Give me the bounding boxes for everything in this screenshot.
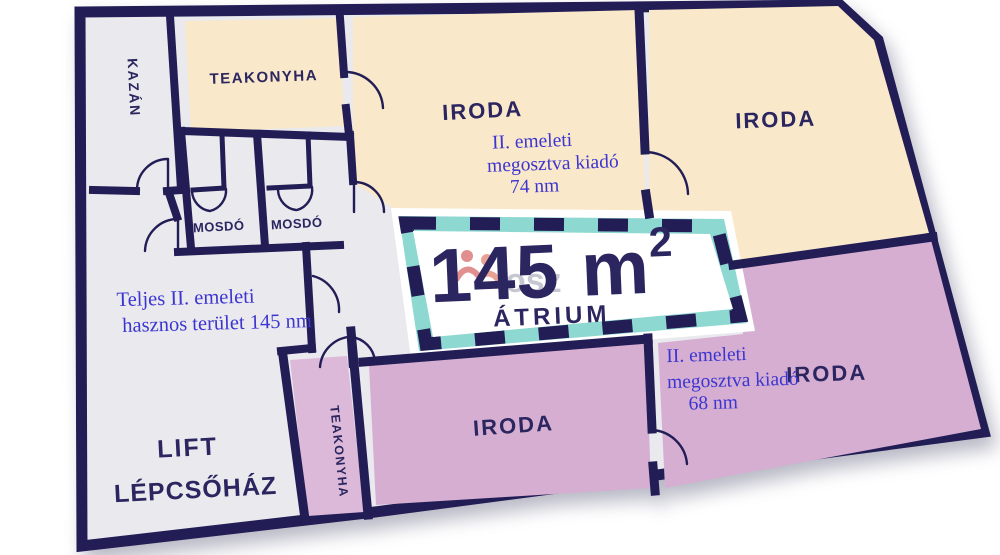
floor-plan-image: osz 145 m2 ÁTRIUM KAZÁN TEAKONYHA MOSDÓ … xyxy=(0,0,1000,555)
floor-plan-page: osz 145 m2 ÁTRIUM KAZÁN TEAKONYHA MOSDÓ … xyxy=(0,0,1000,555)
annotation-right-line3: 68 nm xyxy=(688,392,738,414)
annotation-top-line1: II. emeleti xyxy=(492,130,573,154)
room-label-lift: LIFT xyxy=(157,432,219,463)
room-label-iroda-top-right: IRODA xyxy=(735,106,817,134)
room-label-iroda-top-middle: IRODA xyxy=(442,96,524,125)
annotation-right-line1: II. emeleti xyxy=(666,344,747,367)
annotation-top-line3: 74 nm xyxy=(510,175,560,198)
room-label-kazan: KAZÁN xyxy=(124,58,143,118)
building: osz 145 m2 ÁTRIUM KAZÁN TEAKONYHA MOSDÓ … xyxy=(80,5,984,546)
annotation-right-line2: megosztva kiadó xyxy=(667,369,799,393)
room-label-mosdo-2: MOSDÓ xyxy=(271,215,323,233)
atrium-label: ÁTRIUM xyxy=(493,299,611,332)
room-label-mosdo-1: MOSDÓ xyxy=(193,218,245,236)
annotation-left-line1: Teljes II. emeleti xyxy=(116,286,255,312)
